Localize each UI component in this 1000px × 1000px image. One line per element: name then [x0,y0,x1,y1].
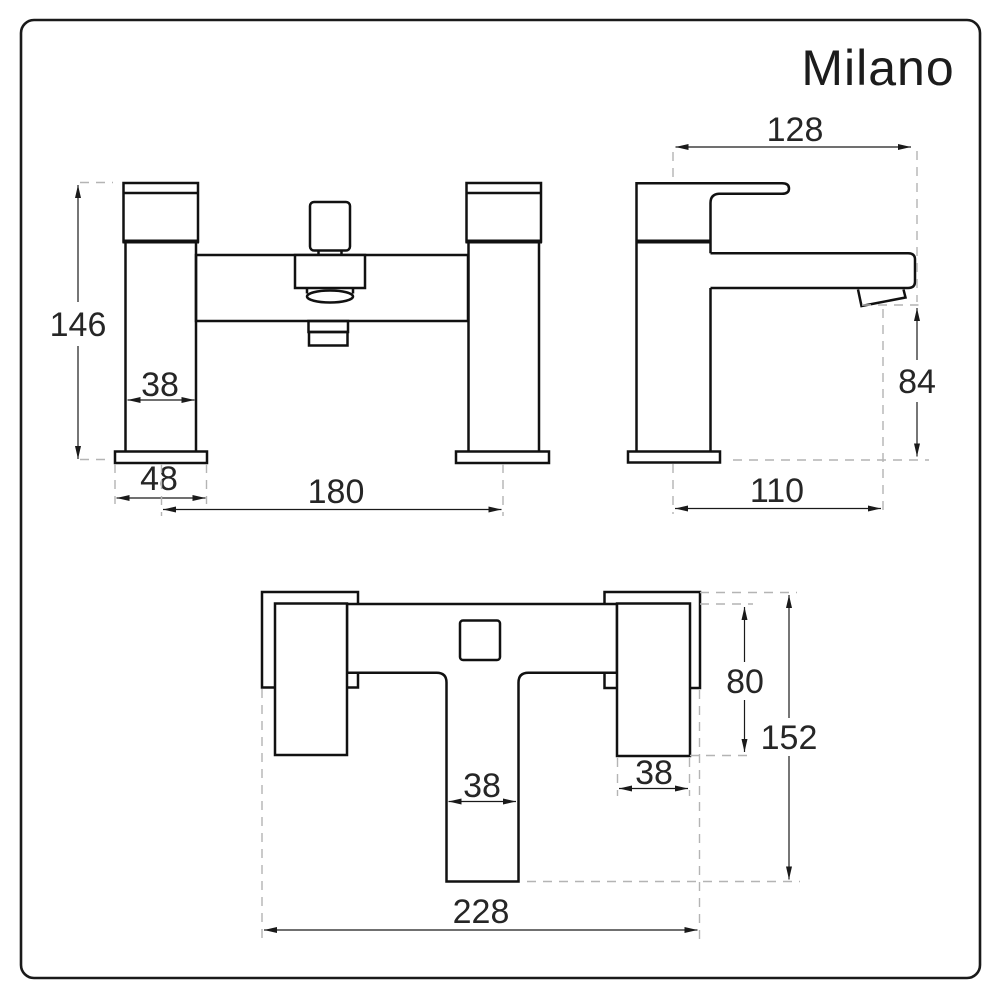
side-dim-spout-clearance: 84 [733,305,936,460]
svg-text:38: 38 [635,754,673,792]
svg-text:228: 228 [453,893,510,931]
svg-text:180: 180 [308,473,365,511]
front-view: 146 38 48 180 [50,183,549,517]
svg-text:128: 128 [767,111,824,149]
svg-text:152: 152 [761,719,818,757]
plan-view: 80 152 38 38 228 [262,592,817,941]
front-dim-base-width: 48 [115,460,207,504]
side-spout [711,253,916,288]
plan-right-pillar [617,604,690,757]
side-view: 128 84 110 [628,111,936,514]
front-hose-dome [307,291,353,303]
technical-drawing-page: Milano 146 38 [0,0,1000,1000]
front-dim-overall-height: 146 [50,183,113,460]
plan-diverter-square [460,621,500,661]
side-column-and-lever [637,183,790,451]
plan-left-pillar [275,604,347,756]
svg-text:84: 84 [898,363,936,401]
side-spout-nozzle [858,290,906,307]
front-outlet-upper [309,321,349,332]
bath-tap-dimension-drawing: Milano 146 38 [0,0,1000,1000]
svg-text:38: 38 [141,366,179,404]
front-dim-tap-centres: 180 [162,464,504,516]
svg-text:38: 38 [463,767,501,805]
svg-text:146: 146 [50,306,107,344]
front-right-pillar-body [469,242,540,452]
front-hose-block [295,255,365,288]
plan-dim-pillar-width: 38 [618,754,690,796]
svg-text:110: 110 [750,472,804,510]
front-left-pillar-body [126,242,197,452]
side-base-plate [628,452,720,463]
side-dim-spout-reach: 110 [673,309,883,514]
front-dim-pillar-width: 38 [128,366,195,404]
front-right-base-plate [456,452,549,464]
front-outlet-lower [309,332,348,346]
front-diverter-knob [310,202,350,251]
brand-logo: Milano [801,40,954,96]
svg-text:80: 80 [726,663,764,701]
svg-text:48: 48 [140,460,178,498]
